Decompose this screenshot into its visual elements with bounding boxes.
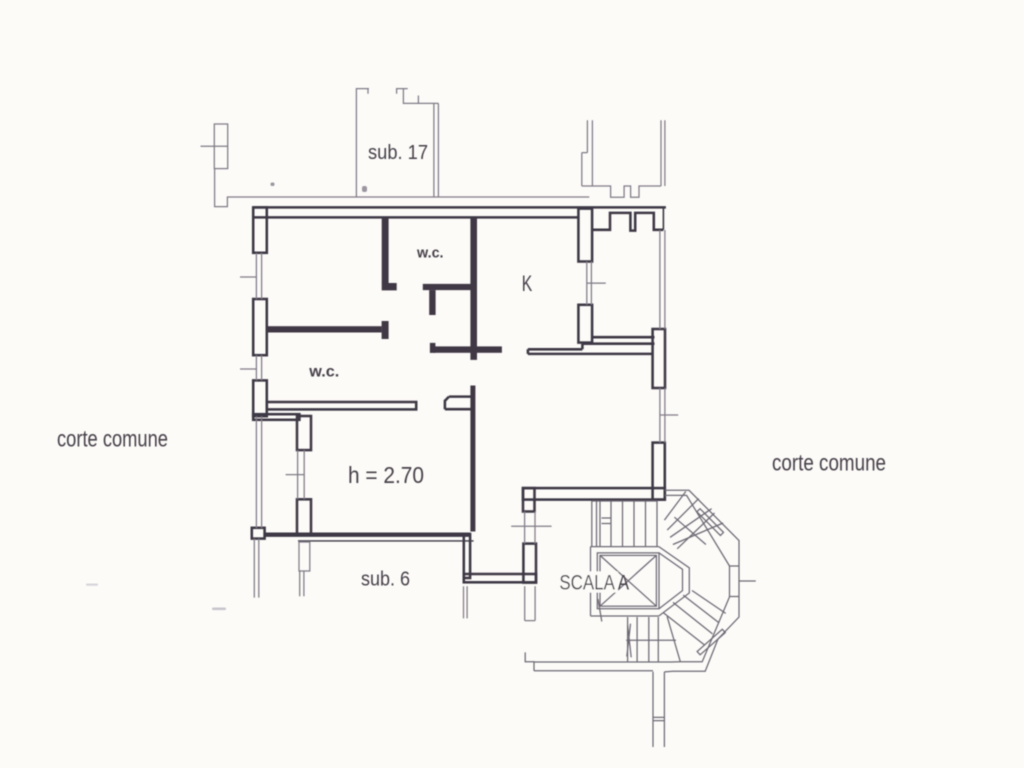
svg-text:SCALA A: SCALA A	[559, 571, 629, 595]
svg-text:h = 2.70: h = 2.70	[348, 462, 424, 488]
svg-text:K: K	[522, 271, 533, 296]
svg-text:w.c.: w.c.	[416, 246, 443, 262]
svg-text:sub. 17: sub. 17	[368, 142, 428, 164]
svg-text:corte comune: corte comune	[57, 426, 168, 452]
svg-text:w.c.: w.c.	[308, 364, 339, 381]
svg-text:corte comune: corte comune	[772, 450, 886, 476]
svg-text:sub. 6: sub. 6	[361, 569, 410, 591]
